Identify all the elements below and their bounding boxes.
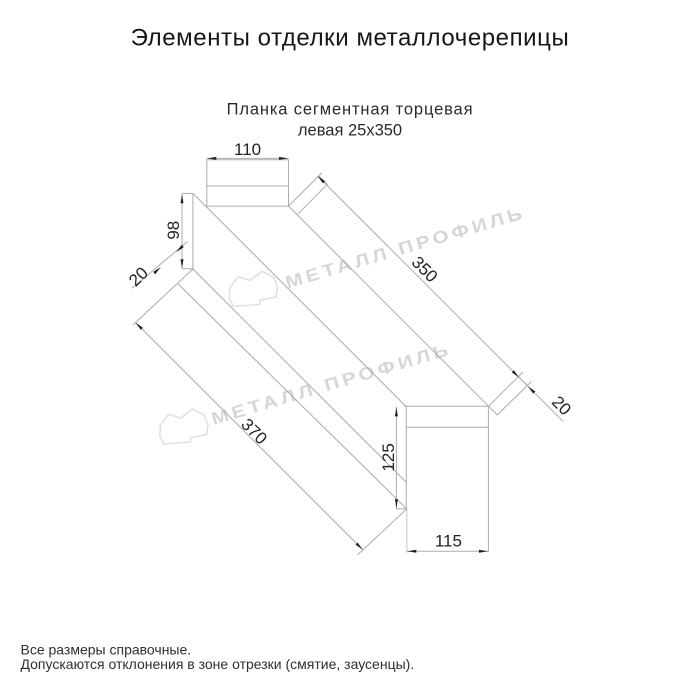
svg-text:20: 20 <box>548 392 575 419</box>
svg-text:Элементы отделки металлочерепи: Элементы отделки металлочерепицы <box>131 25 570 52</box>
svg-text:110: 110 <box>234 140 261 159</box>
svg-text:125: 125 <box>379 443 398 471</box>
svg-text:20: 20 <box>125 263 152 290</box>
svg-text:МЕТАЛЛ ПРОФИЛЬ: МЕТАЛЛ ПРОФИЛЬ <box>209 340 454 429</box>
svg-text:Допускаются отклонения в зоне: Допускаются отклонения в зоне отрезки (с… <box>21 656 415 672</box>
svg-text:350: 350 <box>408 253 441 286</box>
svg-text:левая 25х350: левая 25х350 <box>298 122 402 140</box>
svg-text:Планка сегментная торцевая: Планка сегментная торцевая <box>227 101 474 119</box>
svg-text:98: 98 <box>164 221 183 240</box>
svg-text:115: 115 <box>435 532 462 551</box>
svg-text:МЕТАЛЛ ПРОФИЛЬ: МЕТАЛЛ ПРОФИЛЬ <box>283 204 528 293</box>
